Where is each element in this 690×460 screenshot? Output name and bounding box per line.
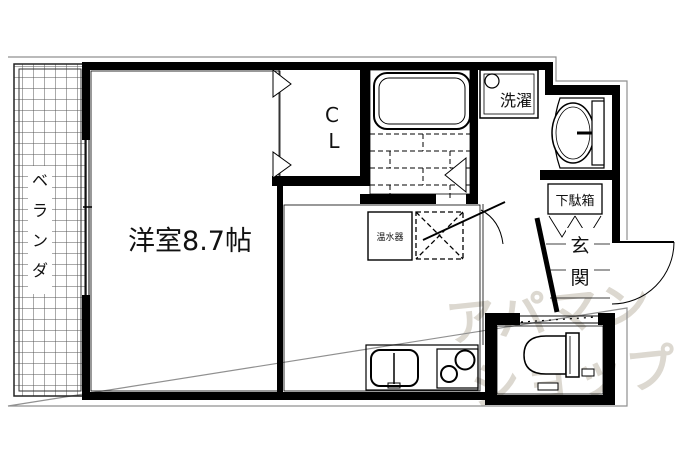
toilet-bowl: [524, 336, 566, 374]
hall-door-leaf: [423, 202, 505, 240]
floor-plan: アパマン ショップ ベ ラ ン ダ: [0, 0, 690, 460]
laundry-space: 洗濯: [480, 70, 538, 118]
shoe-box-label: 下駄箱: [555, 193, 594, 209]
closet-label-char2: L: [328, 129, 340, 153]
entrance-label-char2: 関: [570, 267, 589, 289]
hall-door: [423, 202, 505, 244]
veranda-label-char4: ダ: [32, 261, 48, 280]
washbasin: [552, 98, 604, 168]
kitchen-corridor: 温水器: [368, 212, 463, 260]
floor-plan-drawing: アパマン ショップ ベ ラ ン ダ: [0, 0, 690, 460]
closet-folding-door-icon: [273, 70, 291, 97]
veranda-label-char3: ン: [32, 231, 48, 250]
toilet-paper-holder: [538, 383, 558, 390]
veranda-label-char2: ラ: [32, 201, 48, 220]
bathroom-door-icon: [445, 158, 466, 192]
bathroom: [370, 73, 476, 198]
water-heater-label: 温水器: [376, 231, 403, 243]
closet-folding-door-icon: [273, 152, 291, 178]
veranda: ベ ラ ン ダ: [14, 64, 86, 396]
stove-burner-icon: [441, 366, 457, 382]
bathtub: [374, 73, 470, 129]
hall-door-swing-arc: [481, 210, 503, 244]
kitchen: [366, 345, 478, 390]
entrance-label-char1: 玄: [570, 235, 589, 257]
closet-label-char1: C: [325, 103, 339, 127]
toilet-control: [582, 369, 594, 376]
washbasin-cabinet: [592, 101, 604, 165]
veranda-label-char1: ベ: [32, 171, 48, 190]
closet: C L: [273, 70, 340, 178]
main-room-label: 洋室8.7帖: [128, 226, 252, 257]
laundry-label: 洗濯: [500, 91, 532, 110]
faucet-icon: [485, 74, 499, 88]
toilet-tank: [566, 333, 579, 377]
refrigerator-space: [416, 212, 463, 259]
